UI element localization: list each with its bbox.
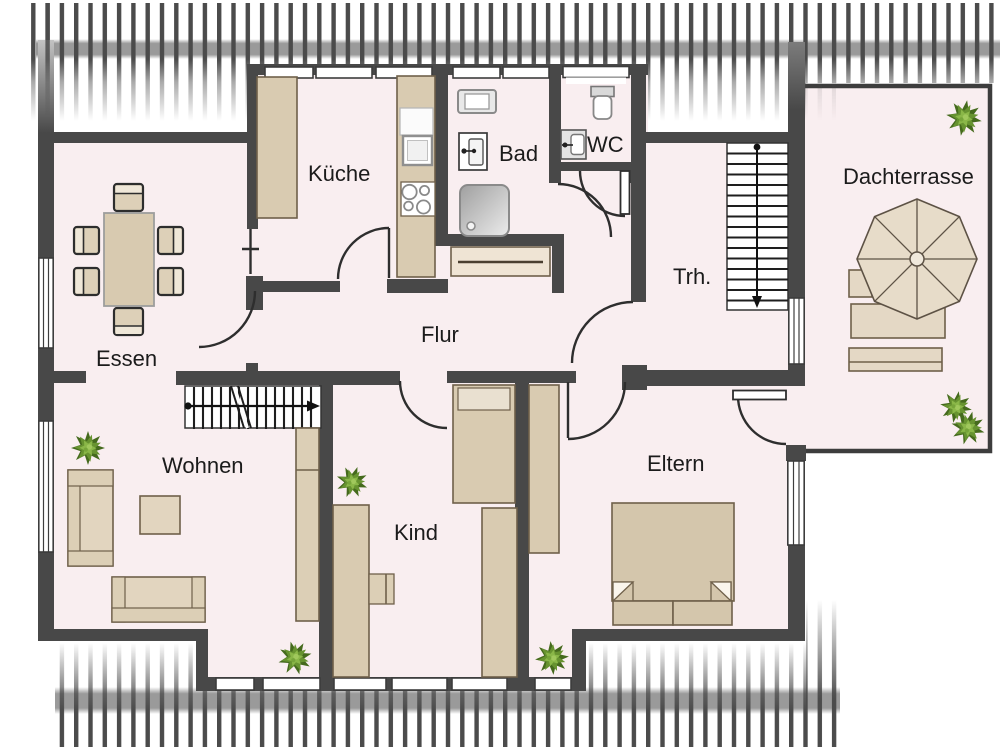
svg-text:Kind: Kind bbox=[394, 520, 438, 545]
svg-text:Eltern: Eltern bbox=[647, 451, 704, 476]
svg-text:Trh.: Trh. bbox=[673, 264, 711, 289]
svg-text:Flur: Flur bbox=[421, 322, 459, 347]
svg-text:Wohnen: Wohnen bbox=[162, 453, 244, 478]
svg-text:Bad: Bad bbox=[499, 141, 538, 166]
svg-text:Essen: Essen bbox=[96, 346, 157, 371]
svg-text:Küche: Küche bbox=[308, 161, 370, 186]
svg-text:Dachterrasse: Dachterrasse bbox=[843, 164, 974, 189]
svg-text:WC: WC bbox=[587, 132, 624, 157]
